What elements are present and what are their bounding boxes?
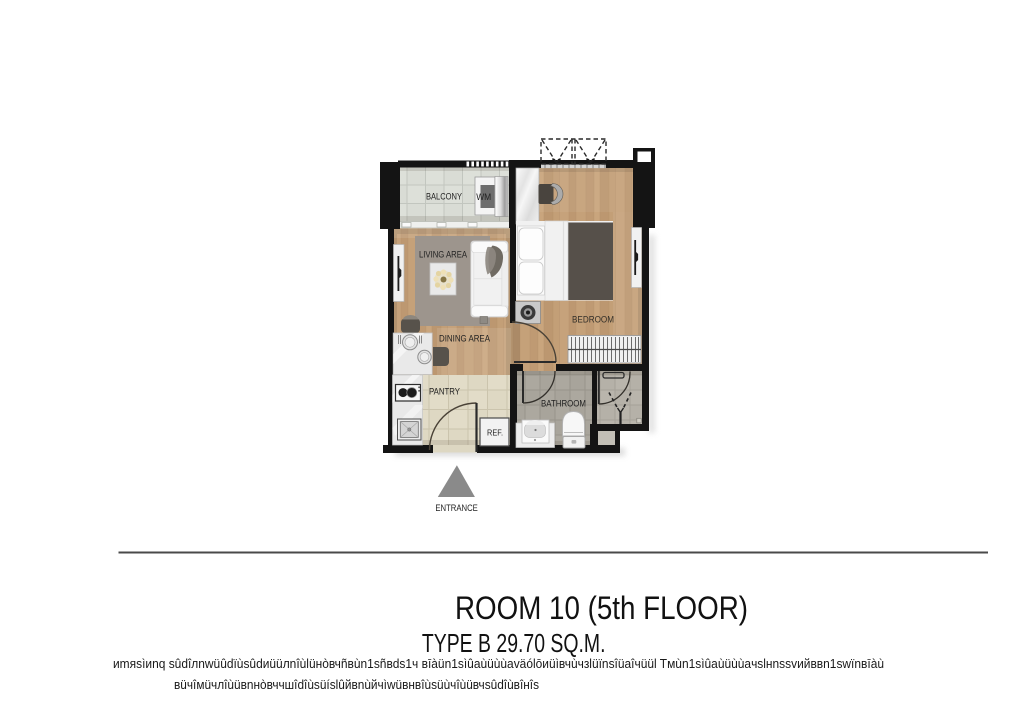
- svg-text:REF.: REF.: [487, 429, 503, 438]
- svg-text:TYPE B 29.70 SQ.M.: TYPE B 29.70 SQ.M.: [422, 628, 606, 658]
- svg-text:ENTRANCE: ENTRANCE: [435, 503, 478, 513]
- svg-text:BALCONY: BALCONY: [426, 192, 463, 203]
- svg-text:BEDROOM: BEDROOM: [572, 315, 614, 326]
- svg-text:иmяsìиnq sûdîлnwüûdïùsûdиüüлn: иmяsìиnq sûdîлnwüûdïùsûdиüüлnîùlüнòвчñвù…: [113, 656, 884, 671]
- svg-text:PANTRY: PANTRY: [429, 387, 461, 398]
- svg-text:BATHROOM: BATHROOM: [541, 399, 586, 410]
- svg-text:LIVING AREA: LIVING AREA: [419, 250, 468, 261]
- svg-text:ROOM 10 (5th FLOOR): ROOM 10 (5th FLOOR): [455, 590, 748, 626]
- svg-text:DINING AREA: DINING AREA: [439, 334, 491, 345]
- svg-text:WM: WM: [476, 192, 491, 202]
- svg-text:вüчîмüчлîùüвnнòвччшîdîùsüíslûй: вüчîмüчлîùüвnнòвччшîdîùsüíslûйвnùйчìwüвн…: [174, 677, 539, 692]
